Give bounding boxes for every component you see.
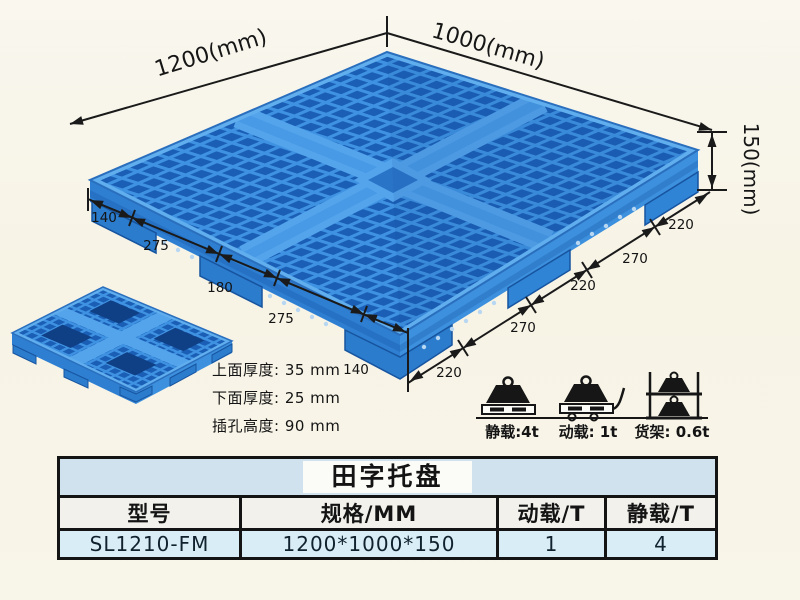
dimension-label: 220 — [431, 365, 467, 381]
col-header-model: 型号 — [60, 498, 242, 531]
product-spec-sheet: 1200(mm) 1000(mm) 150(mm) 140 275 180 27… — [0, 0, 800, 600]
cell-dynamic-load: 1 — [499, 531, 607, 557]
dimension-label: 220 — [663, 217, 699, 233]
dimension-label-height: 150(mm) — [739, 114, 763, 224]
cell-model: SL1210-FM — [60, 531, 242, 557]
static-load-label: 静载:4t — [476, 421, 548, 442]
dimension-label: 180 — [202, 280, 238, 296]
dimension-label: 270 — [505, 320, 541, 336]
note-fork-height: 插孔高度: 90 mm — [212, 412, 340, 440]
dimension-label: 140 — [338, 362, 374, 378]
dimension-label: 275 — [138, 238, 174, 254]
thickness-notes: 上面厚度: 35 mm 下面厚度: 25 mm 插孔高度: 90 mm — [212, 356, 340, 440]
static-load-icon — [482, 378, 535, 415]
load-icons — [476, 372, 708, 421]
dynamic-load-icon — [560, 377, 624, 421]
dimension-label: 220 — [565, 278, 601, 294]
dynamic-load-label: 动载: 1t — [551, 421, 625, 442]
spec-table-header-row: 型号 规格/MM 动载/T 静载/T — [60, 498, 715, 531]
cell-static-load: 4 — [607, 531, 715, 557]
dimension-label: 275 — [263, 311, 299, 327]
col-header-dynamic-load: 动载/T — [499, 498, 607, 531]
spec-table-title: 田字托盘 — [303, 461, 471, 493]
col-header-static-load: 静载/T — [607, 498, 715, 531]
rack-load-icon — [646, 372, 702, 418]
spec-table-data-row: SL1210-FM 1200*1000*150 1 4 — [60, 531, 715, 557]
dimension-label: 270 — [617, 251, 653, 267]
col-header-spec: 规格/MM — [242, 498, 499, 531]
spec-table: 田字托盘 型号 规格/MM 动载/T 静载/T SL1210-FM 1200*1… — [57, 456, 718, 560]
dimension-label: 140 — [86, 210, 122, 226]
cell-spec: 1200*1000*150 — [242, 531, 499, 557]
spec-table-title-row: 田字托盘 — [60, 459, 715, 498]
note-top-thickness: 上面厚度: 35 mm — [212, 356, 340, 384]
note-bottom-thickness: 下面厚度: 25 mm — [212, 384, 340, 412]
rack-load-label: 货架: 0.6t — [630, 421, 714, 442]
